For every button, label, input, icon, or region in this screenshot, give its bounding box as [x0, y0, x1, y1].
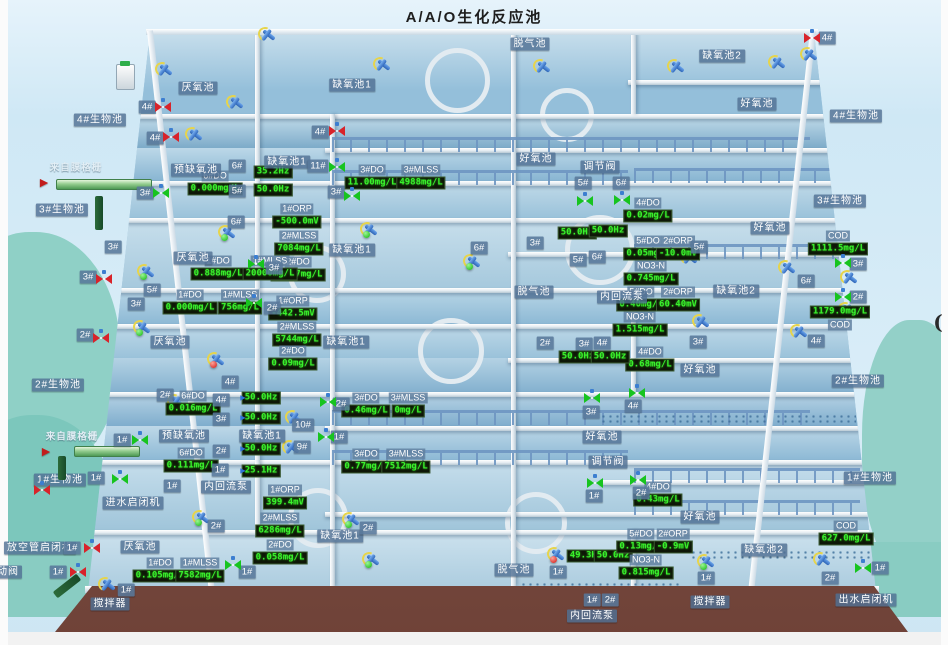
pool-label: 缺氧池2 — [713, 285, 759, 298]
sensor-value: 50.0Hz — [589, 225, 628, 238]
sensor-value: 7512mg/L — [381, 461, 430, 474]
valve-icon[interactable] — [34, 484, 50, 496]
inflow-arrow-icon: ► — [39, 444, 53, 458]
pool-label: 3#生物池 — [814, 195, 866, 208]
id-tag: 5# — [570, 254, 587, 267]
mixer-icon[interactable] — [547, 545, 567, 565]
pool-label: 1#生物池 — [844, 472, 896, 485]
mixer-icon[interactable] — [98, 575, 118, 595]
sensor-value: 4988mg/L — [396, 177, 445, 190]
pool-label: 缺氧池1 — [239, 430, 285, 443]
id-tag: 5# — [229, 185, 246, 198]
pool-label: 好氧池 — [738, 98, 777, 111]
sensor-value: 399.4mV — [263, 497, 307, 510]
id-tag: 6# — [613, 177, 630, 190]
sensor-value: 0.09mg/L — [268, 358, 317, 371]
pump-arrow-icon: ► — [239, 414, 248, 423]
sensor-label: 2#ORP — [656, 529, 690, 540]
sensor-value: 50.0Hz — [254, 184, 293, 197]
sensor-value: 0.745mg/L — [624, 273, 679, 286]
id-tag: 3# — [128, 298, 145, 311]
id-tag: 1# — [239, 566, 256, 579]
sensor-label: COD — [828, 320, 852, 331]
sensor-value: 7582mg/L — [175, 570, 224, 583]
valve-icon[interactable] — [112, 473, 128, 485]
status-ball-icon — [140, 273, 147, 280]
sensor-value: 7084mg/L — [274, 243, 323, 256]
id-tag: 6# — [228, 216, 245, 229]
id-tag: 2# — [360, 522, 377, 535]
mixer-icon[interactable] — [692, 312, 712, 332]
sensor-value: 0.888mg/L — [191, 268, 246, 281]
pool-label: 好氧池 — [681, 364, 720, 377]
pool-label: 4#生物池 — [74, 114, 126, 127]
mixer-icon[interactable] — [360, 220, 380, 240]
sensor-readout: 3#MLSS4988mg/L — [396, 165, 445, 190]
sensor-value: 1179.0mg/L — [810, 306, 870, 319]
sensor-readout: 25.1Hz — [242, 465, 281, 478]
sensor-label: 1#DO — [146, 558, 174, 569]
mixer-icon[interactable] — [667, 57, 687, 77]
valve-icon[interactable] — [132, 434, 148, 446]
id-tag: 1# — [698, 572, 715, 585]
sensor-readout: NO3-N0.815mg/L — [619, 555, 674, 580]
sensor-readout: 50.0Hz — [242, 412, 281, 425]
pool-label: 出水启闭机 — [836, 594, 897, 607]
inlet-device — [116, 64, 135, 90]
pool-label: 脱气池 — [495, 564, 534, 577]
valve-icon[interactable] — [629, 387, 645, 399]
pool-label: 进水启闭机 — [103, 497, 164, 510]
mixer-icon[interactable] — [463, 252, 483, 272]
valve-icon[interactable] — [93, 332, 109, 344]
sensor-label: 4#DO — [634, 198, 662, 209]
sensor-value: 60.40mV — [656, 299, 700, 312]
valve-icon[interactable] — [835, 257, 851, 269]
sensor-readout: COD1111.5mg/L — [808, 231, 868, 256]
status-ball-icon — [550, 556, 557, 563]
mixer-icon[interactable] — [207, 350, 227, 370]
valve-icon[interactable] — [153, 187, 169, 199]
id-tag: 5# — [691, 241, 708, 254]
mixer-icon[interactable] — [185, 125, 205, 145]
id-tag: 4# — [147, 132, 164, 145]
pipe — [58, 456, 66, 480]
pool-label: 好氧池 — [583, 431, 622, 444]
sensor-readout: 2#DO0.09mg/L — [268, 346, 317, 371]
id-tag: 2# — [537, 337, 554, 350]
pool-label: 缺氧池1 — [323, 336, 369, 349]
status-ball-icon — [365, 561, 372, 568]
pool-label: 缺氧池1 — [329, 244, 375, 257]
valve-icon[interactable] — [329, 125, 345, 137]
valve-icon[interactable] — [587, 477, 603, 489]
id-tag: 1# — [64, 542, 81, 555]
sensor-readout: 2#MLSS5744mg/L — [272, 322, 321, 347]
pool-label: 厌氧池 — [151, 336, 190, 349]
sensor-label: 5#DO — [627, 529, 655, 540]
sensor-label: 6#DO — [177, 448, 205, 459]
sensor-readout: 50.0Hz — [242, 443, 281, 456]
sensor-readout: 1#DO0.000mg/L — [163, 290, 218, 315]
id-tag: 4# — [213, 394, 230, 407]
valve-icon[interactable] — [320, 396, 336, 408]
sensor-value: 50.0Hz — [242, 392, 281, 405]
id-tag: 1# — [164, 480, 181, 493]
id-tag: 3# — [527, 237, 544, 250]
status-ball-icon — [210, 361, 217, 368]
valve-icon[interactable] — [84, 542, 100, 554]
id-tag: 2# — [157, 389, 174, 402]
id-tag: 2# — [264, 302, 281, 315]
sensor-value: -0.9mV — [654, 541, 693, 554]
id-tag: 3# — [266, 262, 283, 275]
id-tag: 3# — [137, 187, 154, 200]
id-tag: 2# — [208, 520, 225, 533]
sensor-readout: NO3-N0.745mg/L — [624, 261, 679, 286]
sensor-label: 2#ORP — [661, 287, 695, 298]
pool-label: 缺氧池1 — [264, 156, 310, 169]
id-tag: 4# — [222, 376, 239, 389]
sensor-label: NO3-N — [630, 555, 662, 566]
id-tag: 2# — [850, 291, 867, 304]
status-ball-icon — [700, 563, 707, 570]
id-tag: 3# — [328, 186, 345, 199]
sensor-readout: NO3-N1.515mg/L — [613, 312, 668, 337]
sensor-label: NO3-N — [624, 312, 656, 323]
id-tag: 6# — [798, 275, 815, 288]
sensor-readout: 2#ORP60.40mV — [656, 287, 700, 312]
id-tag: 4# — [819, 32, 836, 45]
pool-label: 脱气池 — [511, 38, 550, 51]
sensor-readout: 3#MLSS0mg/L — [389, 393, 428, 418]
pool-label: 4#生物池 — [830, 110, 882, 123]
sensor-label: 1#MLSS — [181, 558, 220, 569]
pool-label: 厌氧池 — [179, 82, 218, 95]
page-title: A/A/O生化反应池 — [0, 6, 948, 27]
pump-arrow-icon: ► — [239, 467, 248, 476]
pool-label: 内回流泵 — [201, 481, 251, 494]
valve-icon[interactable] — [835, 291, 851, 303]
pool-label: 厌氧池 — [121, 541, 160, 554]
mixer-icon[interactable] — [362, 550, 382, 570]
id-tag: 1# — [114, 434, 131, 447]
mixer-icon[interactable] — [768, 53, 788, 73]
sensor-readout: COD1179.0mg/L — [810, 306, 870, 331]
id-tag: 1# — [584, 594, 601, 607]
pool-label: 调节阀 — [581, 161, 620, 174]
mixer-icon[interactable] — [226, 93, 246, 113]
sensor-value: 50.0Hz — [242, 412, 281, 425]
valve-icon[interactable] — [155, 101, 171, 113]
id-tag: 1# — [118, 584, 135, 597]
id-tag: 2# — [822, 572, 839, 585]
pipe — [74, 446, 140, 457]
pool-label: 缺氧池1 — [317, 530, 363, 543]
pool-label: 2#生物池 — [32, 379, 84, 392]
id-tag: 5# — [575, 177, 592, 190]
sensor-label: 1#ORP — [276, 296, 310, 307]
id-tag: 1# — [586, 490, 603, 503]
sensor-value: 0.058mg/L — [253, 552, 308, 565]
sensor-value: 0.68mg/L — [625, 359, 674, 372]
id-tag: 3# — [105, 241, 122, 254]
sensor-label: 6#DO — [179, 391, 207, 402]
id-tag: 4# — [312, 126, 329, 139]
id-tag: 2# — [633, 487, 650, 500]
sensor-readout: 2#MLSS6286mg/L — [255, 513, 304, 538]
valve-icon[interactable] — [246, 297, 262, 309]
sensor-readout: 3#DO11.00mg/L — [345, 165, 400, 190]
sensor-label: 2#DO — [279, 346, 307, 357]
pool-label: 3#生物池 — [36, 204, 88, 217]
sensor-label: 2#MLSS — [261, 513, 300, 524]
pool-label: 放空管电动阀 — [0, 566, 22, 579]
scada-canvas: A/A/O生化反应池 脱气池缺氧池2缺氧池1厌氧池好氧池4#生物池4#生物池好氧… — [0, 0, 948, 645]
mixer-icon[interactable] — [813, 550, 833, 570]
status-ball-icon — [195, 519, 202, 526]
sensor-label: 2#DO — [266, 540, 294, 551]
pool-label: 内回流泵 — [567, 610, 617, 623]
id-tag: 1# — [550, 566, 567, 579]
sensor-value: 0.111mg/L — [164, 460, 219, 473]
sensor-label: 1#ORP — [280, 204, 314, 215]
sensor-readout: 2#MLSS7084mg/L — [274, 231, 323, 256]
id-tag: 6# — [471, 242, 488, 255]
mixer-icon[interactable] — [533, 57, 553, 77]
sensor-readout: 1#MLSS7582mg/L — [175, 558, 224, 583]
pool-label: 搅拌器 — [691, 596, 730, 609]
mixer-icon[interactable] — [778, 258, 798, 278]
sensor-readout: 2#ORP-0.9mV — [654, 529, 693, 554]
sensor-value: 1.515mg/L — [613, 324, 668, 337]
sensor-readout: 2#DO0.058mg/L — [253, 540, 308, 565]
sensor-value: 50.0Hz — [591, 351, 630, 364]
id-tag: 9# — [294, 441, 311, 454]
pipe — [95, 196, 103, 230]
pump-arrow-icon: ► — [239, 394, 248, 403]
sensor-label: 3#MLSS — [402, 165, 441, 176]
sensor-readout: 50.0Hz — [591, 351, 630, 364]
status-ball-icon — [363, 231, 370, 238]
status-ball-icon — [136, 329, 143, 336]
sensor-readout: 50.0Hz — [589, 225, 628, 238]
mixer-icon[interactable] — [800, 45, 820, 65]
id-tag: 10# — [292, 419, 314, 432]
sensor-value: 0.000mg/L — [163, 302, 218, 315]
id-tag: 1# — [50, 566, 67, 579]
valve-icon[interactable] — [318, 431, 334, 443]
pool-label: 2#生物池 — [832, 375, 884, 388]
id-tag: 4# — [808, 335, 825, 348]
sensor-readout: 1#ORP399.4mV — [263, 485, 307, 510]
sensor-value: 0.02mg/L — [623, 210, 672, 223]
pool-label: 内回流泵 — [597, 291, 647, 304]
sensor-label: COD — [834, 521, 858, 532]
mixer-icon[interactable] — [258, 25, 278, 45]
sensor-value: -500.0mV — [272, 216, 321, 229]
valve-icon[interactable] — [96, 273, 112, 285]
status-ball-icon — [221, 234, 228, 241]
sensor-readout: 6#DO0.111mg/L — [164, 448, 219, 473]
status-ball-icon — [345, 521, 352, 528]
pool-label: 缺氧池2 — [699, 50, 745, 63]
id-tag: 11# — [307, 160, 328, 173]
status-ball-icon — [466, 263, 473, 270]
valve-icon[interactable] — [225, 559, 241, 571]
sensor-label: 2#MLSS — [280, 231, 319, 242]
pool-label: 调节阀 — [589, 456, 628, 469]
id-tag: 3# — [583, 406, 600, 419]
pool-label: 预缺氧池 — [159, 430, 209, 443]
sensor-readout: 50.0Hz — [254, 184, 293, 197]
sensor-readout: COD627.0mg/L — [819, 521, 874, 546]
id-tag: 2# — [213, 445, 230, 458]
pool-label: 搅拌器 — [91, 598, 130, 611]
sensor-value: 6286mg/L — [255, 525, 304, 538]
sensor-label: 3#DO — [358, 165, 386, 176]
id-tag: 6# — [589, 251, 606, 264]
id-tag: 1# — [212, 464, 229, 477]
source-note-label: 来自膜格栅 — [43, 431, 102, 444]
pool-label: 缺氧池1 — [329, 79, 375, 92]
inflow-arrow-icon: ► — [37, 175, 51, 189]
sensor-value: 50.0Hz — [242, 443, 281, 456]
id-tag: 3# — [690, 336, 707, 349]
sensor-label: 3#DO — [352, 449, 380, 460]
pool-label: 预缺氧池 — [171, 164, 221, 177]
sensor-label: 1#DO — [176, 290, 204, 301]
mixer-icon[interactable] — [155, 60, 175, 80]
id-tag: 3# — [80, 271, 97, 284]
sensor-label: 3#MLSS — [389, 393, 428, 404]
id-tag: 3# — [213, 413, 230, 426]
sensor-readout: 4#DO0.68mg/L — [625, 347, 674, 372]
artifact-mark: ( — [930, 310, 945, 334]
pool-label: 好氧池 — [517, 153, 556, 166]
valve-icon[interactable] — [584, 392, 600, 404]
sensor-label: COD — [826, 231, 850, 242]
sensor-readout: 3#MLSS7512mg/L — [381, 449, 430, 474]
sensor-label: 3#DO — [352, 393, 380, 404]
id-tag: 2# — [602, 594, 619, 607]
valve-icon[interactable] — [855, 562, 871, 574]
id-tag: 4# — [594, 337, 611, 350]
pool-label: 好氧池 — [681, 511, 720, 524]
sensor-value: 0mg/L — [391, 405, 424, 418]
sensor-readout: 1#ORP-500.0mV — [272, 204, 321, 229]
sensor-label: 2#MLSS — [278, 322, 317, 333]
id-tag: 6# — [229, 160, 246, 173]
pool-label: 好氧池 — [751, 222, 790, 235]
valve-icon[interactable] — [804, 32, 820, 44]
source-note-label: 来自膜格栅 — [47, 162, 106, 175]
pool-label: 脱气池 — [515, 286, 554, 299]
id-tag: 5# — [144, 284, 161, 297]
sensor-value: 0.815mg/L — [619, 567, 674, 580]
pump-arrow-icon: ► — [239, 445, 248, 454]
id-tag: 1# — [872, 562, 889, 575]
annotation-overlay: 脱气池缺氧池2缺氧池1厌氧池好氧池4#生物池4#生物池好氧池调节阀缺氧池1预缺氧… — [0, 0, 948, 645]
sensor-label: 3#MLSS — [387, 449, 426, 460]
valve-icon[interactable] — [248, 258, 264, 270]
mixer-icon[interactable] — [137, 262, 157, 282]
sensor-label: NO3-N — [635, 261, 667, 272]
id-tag: 1# — [88, 472, 105, 485]
mixer-icon[interactable] — [840, 268, 860, 288]
sensor-label: 4#DO — [636, 347, 664, 358]
sensor-readout: 4#DO0.02mg/L — [623, 198, 672, 223]
id-tag: 2# — [77, 329, 94, 342]
pool-label: 缺氧池2 — [741, 544, 787, 557]
sensor-value: 1111.5mg/L — [808, 243, 868, 256]
valve-icon[interactable] — [344, 190, 360, 202]
id-tag: 4# — [139, 101, 156, 114]
valve-icon[interactable] — [630, 474, 646, 486]
sensor-readout: 50.0Hz — [242, 392, 281, 405]
pool-label: 厌氧池 — [174, 252, 213, 265]
id-tag: 3# — [850, 258, 867, 271]
mixer-icon[interactable] — [373, 55, 393, 75]
sensor-value: 25.1Hz — [242, 465, 281, 478]
id-tag: 3# — [576, 338, 593, 351]
valve-icon[interactable] — [329, 161, 345, 173]
sensor-value: 627.0mg/L — [819, 533, 874, 546]
sensor-label: 1#ORP — [268, 485, 302, 496]
valve-icon[interactable] — [163, 131, 179, 143]
mixer-icon[interactable] — [697, 552, 717, 572]
valve-icon[interactable] — [614, 194, 630, 206]
id-tag: 4# — [625, 400, 642, 413]
valve-icon[interactable] — [577, 195, 593, 207]
